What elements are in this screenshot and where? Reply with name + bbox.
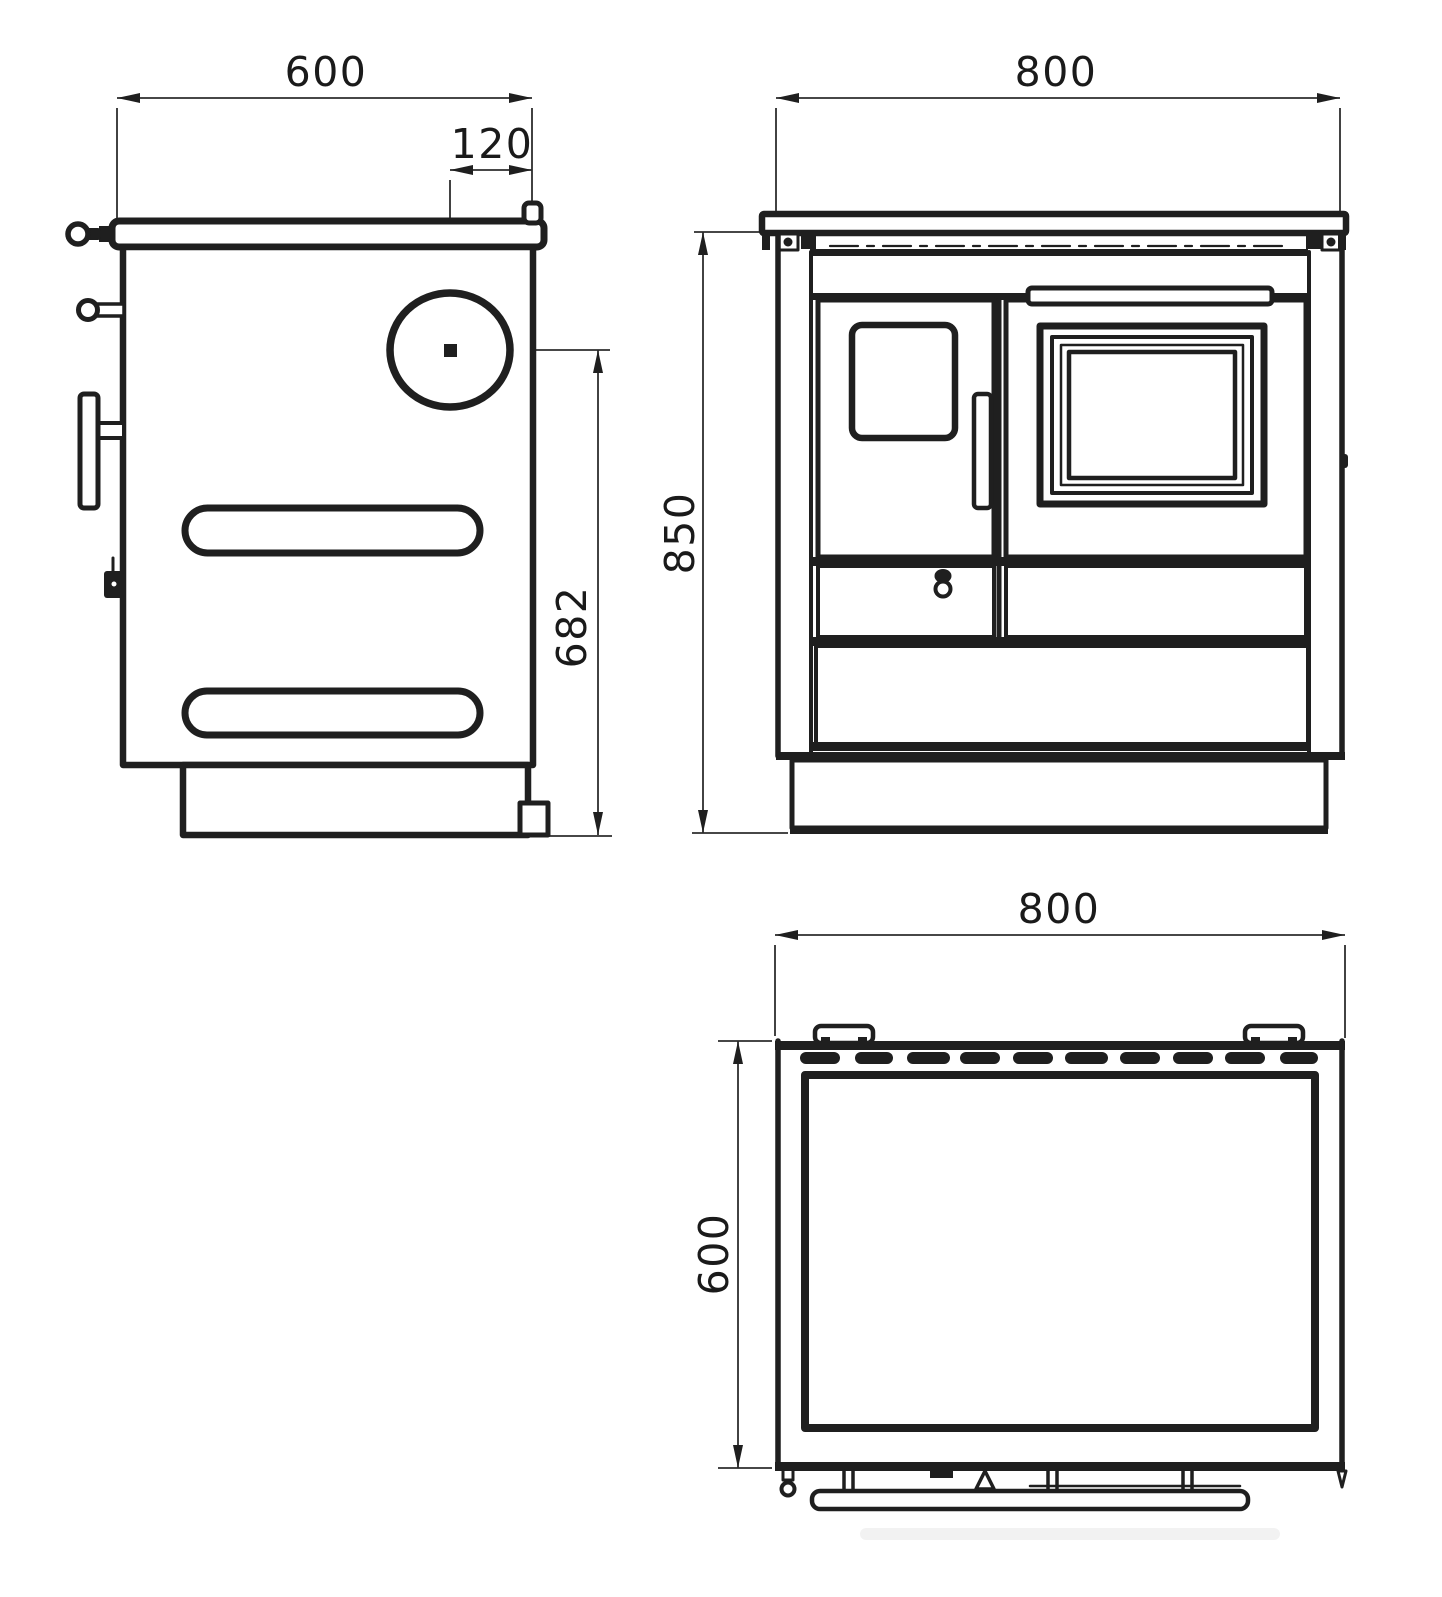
arrowhead: [1322, 930, 1345, 940]
dim-label-top-depth: 600: [690, 1213, 738, 1296]
arrowhead: [698, 810, 708, 833]
utility-drawer: [1006, 566, 1306, 637]
stove-dimension-drawing: 600 120 682: [0, 0, 1442, 1597]
bolt: [1327, 238, 1336, 247]
dim-label-front-width: 800: [1015, 48, 1098, 96]
side-latch-bump: [1340, 454, 1348, 468]
rear-vent-row: [800, 1052, 1318, 1064]
bottom-drawer: [816, 646, 1308, 744]
knob-collar: [99, 226, 114, 242]
foot-stem: [783, 1471, 793, 1480]
vent-dash: [800, 1052, 840, 1064]
top-view-dimensions: 800 600: [690, 885, 1345, 1468]
arrowhead: [698, 232, 708, 255]
front-foot-center: [976, 1471, 994, 1489]
key-latch-ring: [936, 582, 951, 597]
arrowhead: [509, 93, 532, 103]
front-handle-rail: [812, 1491, 1248, 1509]
arrowhead: [733, 1041, 743, 1064]
rail-block: [1306, 235, 1321, 249]
bolt: [784, 238, 793, 247]
vent-dash: [855, 1052, 893, 1064]
rail-end-cap: [762, 233, 770, 250]
firebox-window: [852, 325, 955, 438]
flue-center-mark: [444, 344, 457, 357]
dim-label-flue-height: 682: [548, 586, 596, 669]
arrowhead: [593, 350, 603, 373]
rear-clip-right: [1245, 1026, 1303, 1043]
air-control-knob: [79, 301, 98, 320]
front-foot-left: [782, 1483, 795, 1496]
rear-clip-left: [815, 1026, 873, 1043]
latch-hole: [112, 582, 117, 587]
plinth-front: [792, 760, 1326, 828]
bottom-drawer-rail: [810, 742, 1308, 751]
arrowhead: [117, 93, 140, 103]
arrowhead: [776, 93, 799, 103]
hob-top-plate-front: [762, 214, 1346, 233]
vent-dash: [1280, 1052, 1318, 1064]
dim-label-top-width: 800: [1018, 885, 1101, 933]
vent-dash: [1225, 1052, 1265, 1064]
front-edge: [775, 1462, 1345, 1471]
dim-label-front-height: 850: [656, 492, 704, 575]
front-view-stove: [762, 214, 1348, 834]
damper-knob: [68, 224, 88, 244]
cooktop-plate: [805, 1075, 1315, 1428]
front-notch: [930, 1469, 953, 1478]
firebox-handle: [974, 394, 991, 508]
top-view-stove: [775, 1026, 1346, 1540]
door-handle-bar: [80, 394, 98, 508]
arrowhead: [1317, 93, 1340, 103]
vent-dash: [907, 1052, 950, 1064]
floor-shadow: [860, 1528, 1280, 1540]
rail-block: [801, 235, 816, 249]
side-view-stove: [68, 203, 548, 835]
arrowhead: [733, 1445, 743, 1468]
vent-slot-lower: [185, 691, 480, 735]
vent-dash: [1173, 1052, 1213, 1064]
dim-label-side-width: 600: [285, 48, 368, 96]
plinth-foot: [520, 803, 548, 835]
front-foot-right: [1338, 1471, 1346, 1487]
vent-dash: [1013, 1052, 1053, 1064]
top-view: 800 600: [690, 885, 1346, 1540]
arrowhead: [593, 812, 603, 835]
vent-dash: [1120, 1052, 1160, 1064]
flue-collar-tab: [524, 203, 541, 223]
side-view: 600 120 682: [68, 48, 612, 836]
ash-drawer: [818, 566, 994, 637]
rear-edge: [775, 1041, 1345, 1050]
front-fittings: [782, 1469, 1347, 1509]
dim-label-flue-offset: 120: [451, 120, 534, 168]
plinth-side: [183, 765, 528, 835]
front-view: 800 850: [656, 48, 1348, 834]
arrowhead: [775, 930, 798, 940]
air-control-stem: [96, 304, 124, 316]
vent-slot-upper: [185, 508, 480, 553]
technical-drawing-page: 600 120 682: [0, 0, 1442, 1597]
hob-front-edge: [810, 249, 1308, 256]
plinth-floor-line: [790, 827, 1328, 834]
vent-dash: [960, 1052, 1000, 1064]
oven-handle-bar: [1028, 288, 1272, 304]
hob-top-plate: [112, 221, 544, 247]
vent-dash: [1065, 1052, 1108, 1064]
handle-bracket: [97, 423, 124, 438]
